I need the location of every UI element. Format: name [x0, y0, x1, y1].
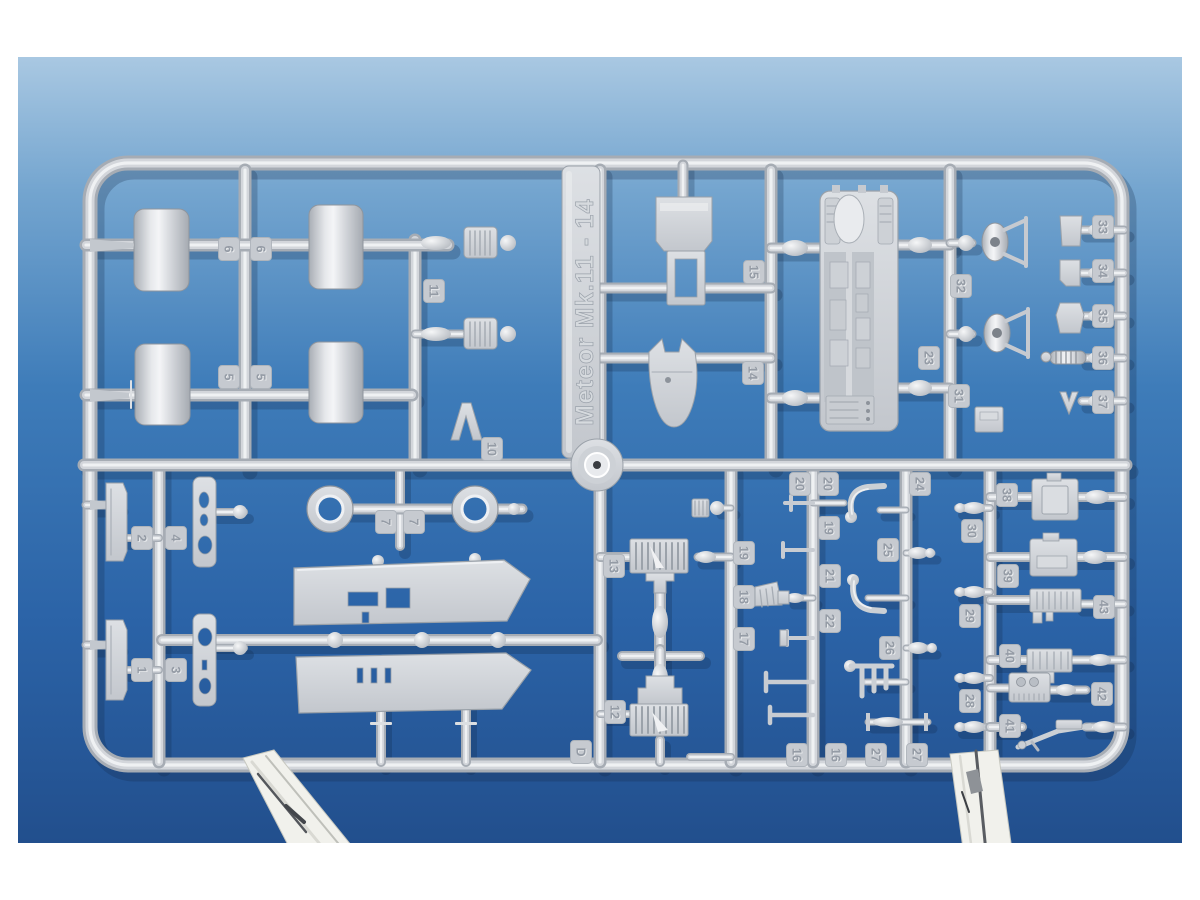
part-shape [856, 262, 870, 288]
sprue-joint [955, 503, 965, 513]
svg-text:10: 10 [485, 442, 499, 456]
part-shape [1056, 720, 1082, 729]
part-number-tab: 4141 [1000, 715, 1021, 738]
svg-text:38: 38 [1000, 488, 1014, 502]
part-shape [1030, 678, 1039, 687]
part-shape [675, 259, 697, 297]
sprue-joint [1093, 721, 1115, 733]
part-shape [455, 722, 477, 725]
part-number-tab: 3838 [997, 484, 1018, 507]
nacelle-half [135, 344, 190, 425]
svg-text:16: 16 [790, 748, 804, 762]
sprue-joint [710, 501, 724, 515]
part-number-tab: 44 [166, 527, 187, 550]
part-shape [665, 377, 671, 383]
svg-text:3: 3 [169, 667, 183, 674]
part-number-tab: 55 [251, 366, 272, 389]
part-number-tab: 3333 [1093, 216, 1114, 239]
sprue-letter-tab: DD [571, 741, 592, 764]
svg-text:1: 1 [135, 667, 149, 674]
part-shape [990, 237, 1000, 247]
part-shape [866, 401, 870, 405]
svg-text:11: 11 [427, 284, 441, 297]
part-number-tab: 1010 [482, 438, 503, 461]
part-shape [370, 722, 392, 725]
part-shape [348, 592, 378, 606]
part-shape [362, 612, 369, 623]
svg-text:17: 17 [737, 632, 751, 646]
svg-text:35: 35 [1096, 309, 1110, 323]
sprue-joint [233, 505, 247, 519]
page: 6666555511111010777722441133151514142323… [0, 0, 1200, 900]
part-number-tab: 2929 [960, 605, 981, 628]
svg-text:7: 7 [407, 519, 421, 526]
sprue-joint [421, 236, 451, 250]
svg-text:28: 28 [963, 694, 977, 708]
part-number-tab: 22 [132, 527, 153, 550]
sprue-joint [1085, 490, 1109, 504]
part-number-tab: 3232 [951, 275, 972, 298]
part-shape [1018, 741, 1026, 749]
part-number-tab: 2424 [910, 473, 931, 496]
sprue-joint [908, 642, 928, 654]
svg-text:23: 23 [922, 351, 936, 365]
svg-text:13: 13 [607, 559, 621, 573]
sprue-joint [908, 237, 932, 253]
sprue-joint [327, 632, 343, 648]
part-shape [866, 713, 870, 731]
svg-text:20: 20 [821, 477, 835, 491]
svg-text:37: 37 [1096, 395, 1110, 409]
part-shape [866, 417, 870, 421]
part-number-tab: 1919 [734, 542, 755, 565]
part-number-tab: 2525 [878, 539, 899, 562]
nacelle-half [309, 342, 363, 423]
sprue-joint [955, 722, 965, 732]
nacelle-half [309, 205, 363, 289]
part-number-tab: 2727 [907, 744, 928, 767]
part-number-tab: 1212 [605, 701, 626, 724]
sprue-joint [963, 721, 985, 733]
part-shape [830, 340, 848, 366]
part-shape [880, 185, 888, 193]
part-shape [856, 318, 870, 340]
sprue-joint [233, 641, 247, 655]
part-shape [1047, 473, 1061, 481]
part-number-tab: 1818 [734, 586, 755, 609]
svg-text:6: 6 [222, 246, 236, 253]
part-shape [1037, 556, 1067, 568]
sprue-joint [782, 240, 808, 256]
sprue-joint [421, 327, 451, 341]
svg-text:27: 27 [910, 748, 924, 762]
gear-door [106, 483, 127, 561]
sprue-joint [955, 587, 965, 597]
svg-text:5: 5 [222, 374, 236, 381]
sprue-joint [958, 235, 974, 251]
sprue-joint [955, 673, 965, 683]
svg-text:12: 12 [608, 705, 622, 719]
part-number-tab: 11 [132, 659, 153, 682]
sprue-joint [500, 235, 516, 251]
sprue-joint [873, 717, 903, 727]
svg-text:29: 29 [963, 609, 977, 623]
sprue-joint [500, 326, 516, 342]
part-number-tab: 3737 [1093, 391, 1114, 414]
svg-text:42: 42 [1095, 687, 1109, 701]
part-number-tab: 4040 [1000, 645, 1021, 668]
part-shape [856, 348, 870, 368]
part-shape [980, 412, 998, 420]
sprue-joint [908, 380, 932, 396]
part-number-tab: 66 [219, 238, 240, 261]
part-shape [202, 660, 207, 670]
svg-text:30: 30 [965, 524, 979, 538]
small-part [1060, 260, 1080, 286]
svg-text:18: 18 [737, 590, 751, 604]
small-part [1060, 216, 1082, 246]
part-shape [834, 195, 864, 243]
svg-text:26: 26 [883, 641, 897, 655]
svg-text:5: 5 [254, 374, 268, 381]
part-shape [832, 185, 840, 193]
part-number-tab: 1616 [787, 744, 808, 767]
part-shape [1046, 612, 1053, 621]
svg-text:22: 22 [823, 614, 837, 628]
part-shape [371, 668, 377, 683]
part-shape [856, 294, 868, 312]
svg-text:15: 15 [747, 265, 761, 279]
svg-text:16: 16 [829, 748, 843, 762]
svg-text:31: 31 [952, 389, 966, 403]
part-number-tab: 1616 [826, 744, 847, 767]
part-number-tab: 4343 [1094, 596, 1115, 619]
svg-text:19: 19 [822, 521, 836, 535]
nacelle-half [134, 209, 189, 291]
svg-text:6: 6 [254, 246, 268, 253]
svg-text:34: 34 [1096, 264, 1110, 278]
svg-text:D: D [574, 747, 588, 756]
svg-text:14: 14 [746, 366, 760, 380]
part-shape [1041, 352, 1051, 362]
part-number-tab: 2121 [820, 565, 841, 588]
part-shape [1014, 694, 1044, 700]
gear-door [106, 620, 127, 700]
part-number-tab: 1717 [734, 628, 755, 651]
part-number-tab: 1111 [424, 280, 445, 303]
sprue-joint [652, 606, 668, 638]
sprue-joint [414, 632, 430, 648]
part-shape [1042, 486, 1068, 514]
part-number-tab: 2828 [960, 690, 981, 713]
part-number-tab: 55 [219, 366, 240, 389]
sprue-joint [490, 632, 506, 648]
part-number-tab: 3434 [1093, 260, 1114, 283]
part-number-tab: 1919 [819, 517, 840, 540]
part-number-tab: 4242 [1092, 683, 1113, 706]
part-shape [357, 668, 363, 683]
part-shape [198, 536, 212, 554]
svg-text:36: 36 [1096, 351, 1110, 365]
svg-text:43: 43 [1097, 600, 1111, 614]
part-shape [593, 461, 601, 469]
svg-text:25: 25 [881, 543, 895, 557]
sprue-joint [963, 672, 985, 684]
part-number-tab: 1313 [604, 555, 625, 578]
sprue-joint [925, 548, 935, 558]
part-number-tab: 33 [166, 659, 187, 682]
part-number-tab: 77 [404, 511, 425, 534]
part-shape [385, 668, 391, 683]
sprue-scene: 6666555511111010777722441133151514142323… [0, 0, 1200, 900]
sprue-joint [963, 586, 985, 598]
bracket-part [1027, 649, 1072, 672]
small-part [1056, 303, 1084, 333]
part-number-tab: 2020 [790, 473, 811, 496]
svg-text:32: 32 [954, 279, 968, 293]
svg-text:33: 33 [1096, 220, 1110, 234]
part-shape [1033, 612, 1042, 623]
svg-text:24: 24 [913, 477, 927, 491]
part-number-tab: 2727 [866, 744, 887, 767]
part-number-tab: 2323 [919, 347, 940, 370]
sprue-joint [1089, 654, 1111, 666]
svg-text:40: 40 [1003, 649, 1017, 663]
part-shape [866, 409, 870, 413]
part-shape [1037, 592, 1073, 609]
part-number-tab: 66 [251, 238, 272, 261]
part-shape [200, 514, 208, 526]
part-number-tab: 3939 [998, 565, 1019, 588]
part-shape [830, 300, 846, 330]
part-shape [199, 678, 211, 694]
sprue-joint [927, 643, 937, 653]
part-number-tab: 3636 [1093, 347, 1114, 370]
part-shape [386, 588, 410, 608]
fuselage-half-lower [296, 653, 531, 713]
svg-text:27: 27 [869, 748, 883, 762]
sprue-label: Meteor Mk.11 - 14 [571, 198, 599, 425]
sprue-joint [508, 503, 520, 515]
svg-text:19: 19 [737, 546, 751, 560]
part-shape [1017, 678, 1026, 687]
part-shape [198, 628, 212, 646]
sprue-joint [696, 551, 716, 563]
svg-text:7: 7 [379, 519, 393, 526]
model-kit-sprue-photo: 6666555511111010777722441133151514142323… [0, 0, 1200, 900]
sprue-joint [1083, 550, 1107, 564]
part-shape [830, 262, 848, 288]
part-shape [858, 185, 866, 193]
part-shape [992, 328, 1002, 338]
part-shape [924, 713, 928, 731]
part-shape [780, 630, 787, 646]
part-number-tab: 2626 [880, 637, 901, 660]
sprue-joint [963, 502, 985, 514]
part-number-tab: 2020 [818, 473, 839, 496]
part-number-tab: 1515 [744, 261, 765, 284]
part-number-tab: 2222 [820, 610, 841, 633]
svg-text:20: 20 [793, 477, 807, 491]
part-shape [660, 203, 708, 211]
part-shape [878, 198, 893, 244]
part-shape [1043, 533, 1059, 541]
small-part [778, 591, 789, 604]
svg-text:21: 21 [823, 569, 837, 583]
part-number-tab: 1414 [743, 362, 764, 385]
part-number-tab: 3535 [1093, 305, 1114, 328]
sprue-joint [958, 326, 974, 342]
part-shape [199, 492, 209, 508]
svg-text:2: 2 [135, 535, 149, 542]
part-number-tab: 77 [376, 511, 397, 534]
svg-text:41: 41 [1003, 719, 1017, 733]
part-number-tab: 3030 [962, 520, 983, 543]
sprue-joint [1056, 684, 1076, 696]
svg-text:39: 39 [1001, 569, 1015, 583]
part-number-tab: 3131 [949, 385, 970, 408]
sprue-joint [782, 390, 808, 406]
svg-text:4: 4 [169, 535, 183, 542]
